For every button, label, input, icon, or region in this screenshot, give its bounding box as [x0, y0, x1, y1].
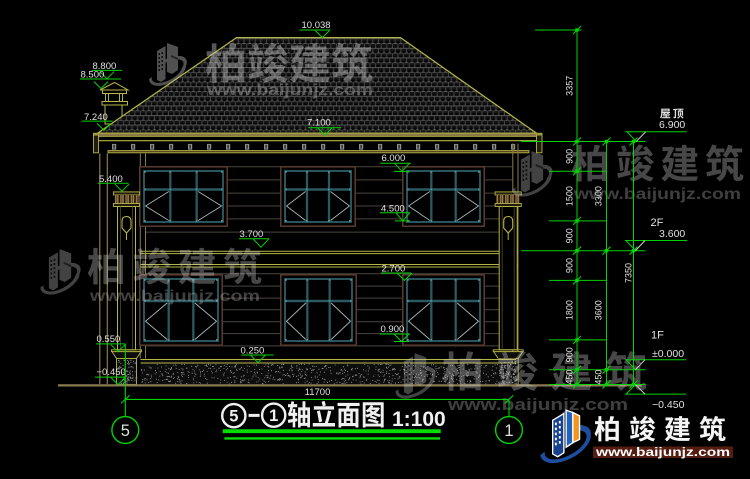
- svg-text:0.550: 0.550: [97, 334, 121, 345]
- svg-text:8.500: 8.500: [81, 70, 105, 81]
- svg-text:7.100: 7.100: [307, 118, 331, 129]
- svg-text:5.400: 5.400: [99, 174, 123, 185]
- svg-text:7.240: 7.240: [84, 112, 108, 123]
- svg-text:1: 1: [269, 407, 278, 425]
- svg-text:2.700: 2.700: [382, 263, 406, 274]
- svg-text:0.250: 0.250: [241, 345, 265, 356]
- svg-text:−0.450: −0.450: [97, 367, 126, 378]
- svg-text:450: 450: [565, 370, 575, 385]
- svg-text:www.baijunjz.com: www.baijunjz.com: [595, 447, 730, 459]
- svg-text:450: 450: [594, 370, 604, 385]
- svg-text:www.baijunjz.com: www.baijunjz.com: [206, 82, 373, 99]
- svg-text:3357: 3357: [565, 76, 575, 96]
- svg-text:3600: 3600: [594, 300, 604, 320]
- svg-text:±0.000: ±0.000: [652, 348, 684, 360]
- svg-text:11700: 11700: [305, 387, 331, 398]
- svg-text:5: 5: [229, 408, 238, 426]
- svg-text:5: 5: [121, 422, 130, 440]
- svg-text:900: 900: [565, 258, 575, 273]
- svg-text:www.baijunjz.com: www.baijunjz.com: [89, 288, 260, 305]
- svg-text:4.500: 4.500: [381, 204, 405, 215]
- svg-text:3.600: 3.600: [659, 228, 685, 240]
- svg-text:6.900: 6.900: [659, 119, 685, 131]
- svg-text:900: 900: [565, 347, 575, 362]
- svg-text:900: 900: [565, 149, 575, 164]
- svg-text:1500: 1500: [565, 186, 575, 206]
- svg-text:3300: 3300: [594, 186, 604, 206]
- svg-text:7350: 7350: [624, 263, 634, 283]
- svg-text:1:100: 1:100: [392, 408, 446, 431]
- svg-text:6.000: 6.000: [382, 153, 406, 164]
- svg-text:10.038: 10.038: [302, 20, 331, 31]
- svg-text:www.baijunjz.com: www.baijunjz.com: [447, 396, 628, 414]
- svg-text:1F: 1F: [651, 330, 664, 342]
- svg-text:0.900: 0.900: [381, 324, 405, 335]
- svg-text:3.700: 3.700: [240, 229, 264, 240]
- svg-text:1800: 1800: [565, 300, 575, 320]
- svg-text:1: 1: [504, 422, 513, 440]
- svg-text:900: 900: [565, 228, 575, 243]
- svg-text:−0.450: −0.450: [652, 399, 685, 411]
